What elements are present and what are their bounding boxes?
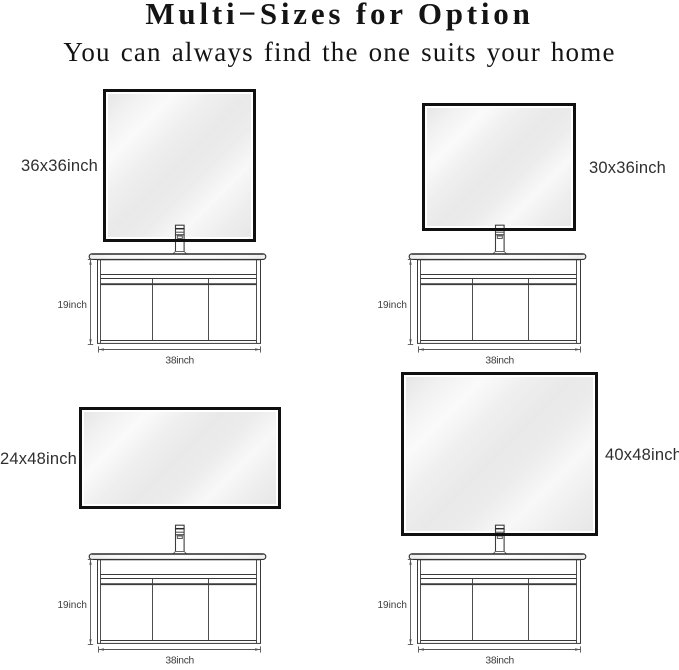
svg-text:19inch: 19inch (57, 600, 86, 611)
svg-text:19inch: 19inch (57, 300, 86, 311)
svg-text:38inch: 38inch (165, 356, 194, 367)
svg-text:38inch: 38inch (485, 356, 514, 367)
svg-text:19inch: 19inch (377, 600, 406, 611)
svg-text:19inch: 19inch (377, 300, 406, 311)
